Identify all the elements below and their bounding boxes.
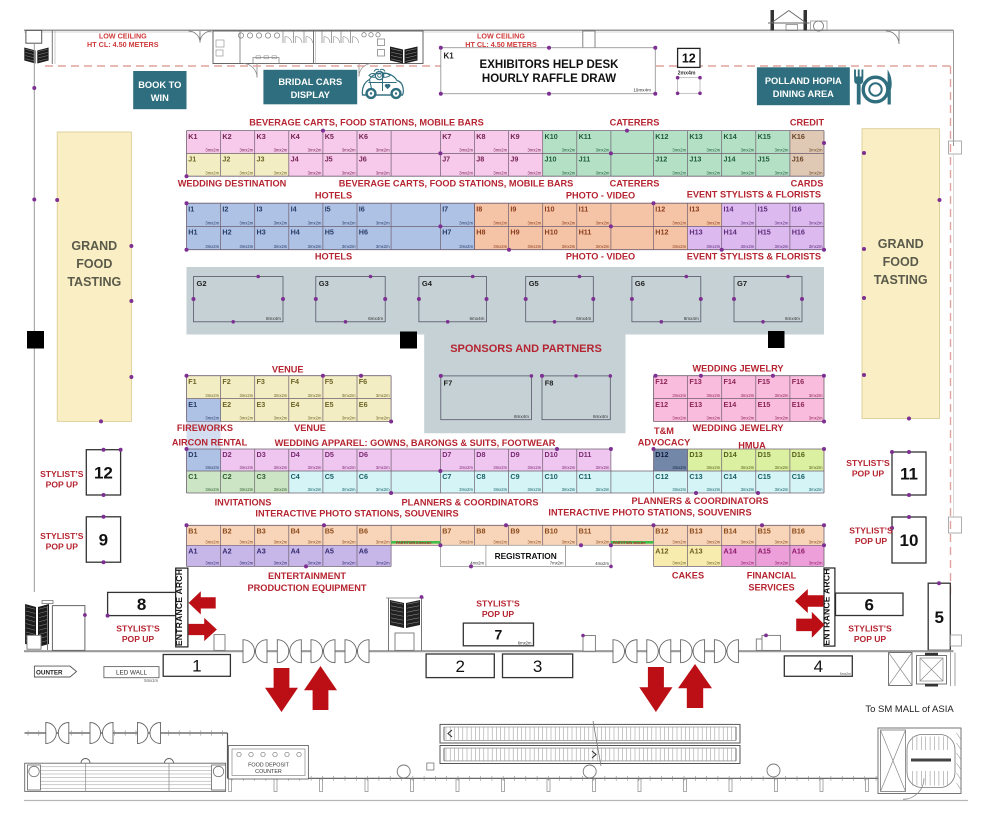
svg-text:G2: G2 (197, 279, 207, 288)
svg-text:A6: A6 (359, 547, 368, 556)
svg-text:CREDIT: CREDIT (790, 118, 825, 128)
svg-text:D12: D12 (655, 450, 668, 459)
svg-text:WEDDING JEWELRY: WEDDING JEWELRY (692, 423, 783, 433)
svg-text:K14: K14 (724, 132, 737, 141)
svg-text:I11: I11 (579, 204, 589, 213)
svg-text:I1: I1 (188, 204, 194, 213)
svg-text:POP UP: POP UP (855, 536, 888, 546)
svg-text:J16: J16 (792, 155, 804, 164)
svg-text:H7: H7 (442, 228, 451, 237)
svg-text:3mx2m: 3mx2m (308, 561, 322, 566)
svg-text:DINING AREA: DINING AREA (773, 89, 834, 99)
svg-text:HT CL: 4.50 METERS: HT CL: 4.50 METERS (87, 40, 159, 49)
svg-text:B16: B16 (792, 527, 805, 536)
svg-text:F16: F16 (792, 377, 804, 386)
svg-text:WEDDING JEWELRY: WEDDING JEWELRY (692, 364, 783, 374)
svg-text:WIN: WIN (151, 93, 169, 103)
svg-text:3mx2m: 3mx2m (342, 148, 356, 153)
svg-text:POLLAND HOPIA: POLLAND HOPIA (765, 76, 842, 86)
svg-text:SPONSORS AND PARTNERS: SPONSORS AND PARTNERS (450, 343, 602, 355)
svg-text:3mx2m: 3mx2m (596, 540, 610, 545)
svg-text:3mx2m: 3mx2m (741, 465, 755, 470)
svg-text:3mx2m: 3mx2m (562, 540, 576, 545)
svg-text:3mx2m: 3mx2m (741, 487, 755, 492)
svg-text:VENUE: VENUE (294, 423, 326, 433)
svg-text:C4: C4 (291, 472, 300, 481)
svg-text:3mx2m: 3mx2m (308, 416, 322, 421)
svg-text:POP UP: POP UP (46, 480, 79, 490)
svg-text:E12: E12 (655, 400, 668, 409)
svg-text:5mx2m: 5mx2m (840, 672, 851, 676)
svg-text:C3: C3 (257, 472, 266, 481)
svg-text:3mx2m: 3mx2m (741, 416, 755, 421)
svg-text:7: 7 (495, 627, 503, 643)
svg-text:3mx2m: 3mx2m (706, 561, 720, 566)
svg-text:3mx2m: 3mx2m (672, 244, 686, 249)
svg-text:D16: D16 (792, 450, 805, 459)
svg-text:3mx2m: 3mx2m (459, 170, 473, 175)
svg-text:3mx2m: 3mx2m (376, 416, 390, 421)
svg-text:3mx2m: 3mx2m (376, 540, 390, 545)
svg-text:J14: J14 (724, 155, 736, 164)
svg-text:3mx2m: 3mx2m (342, 393, 356, 398)
svg-text:F5: F5 (325, 377, 333, 386)
svg-text:K10: K10 (545, 132, 558, 141)
svg-text:3mx2m: 3mx2m (706, 148, 720, 153)
svg-text:3mx2m: 3mx2m (809, 170, 823, 175)
svg-text:I3: I3 (257, 204, 263, 213)
svg-text:B13: B13 (689, 527, 702, 536)
svg-text:BEVERAGE CARTS, FOOD STATIONS,: BEVERAGE CARTS, FOOD STATIONS, MOBILE BA… (339, 179, 573, 189)
svg-text:B11: B11 (579, 527, 592, 536)
svg-text:J2: J2 (222, 155, 230, 164)
svg-text:3mx2m: 3mx2m (775, 148, 789, 153)
svg-text:HMUA: HMUA (738, 441, 766, 451)
svg-text:ENTRANCE ARCH: ENTRANCE ARCH (174, 569, 184, 646)
svg-text:J6: J6 (359, 155, 367, 164)
svg-text:J3: J3 (257, 155, 265, 164)
svg-text:CARDS: CARDS (791, 179, 824, 189)
svg-text:K7: K7 (442, 132, 451, 141)
svg-text:POP UP: POP UP (854, 634, 887, 644)
svg-text:12: 12 (682, 52, 696, 66)
svg-text:3mx2m: 3mx2m (459, 487, 473, 492)
svg-text:B7: B7 (442, 527, 451, 536)
svg-text:I16: I16 (792, 204, 802, 213)
svg-text:B6: B6 (359, 527, 368, 536)
svg-text:FINANCIAL: FINANCIAL (747, 571, 797, 581)
svg-text:B1: B1 (188, 527, 197, 536)
svg-text:WEDDING DESTINATION: WEDDING DESTINATION (178, 179, 287, 189)
svg-text:A14: A14 (724, 547, 737, 556)
svg-text:3mx2m: 3mx2m (239, 170, 253, 175)
svg-text:6mx4m: 6mx4m (785, 316, 800, 321)
svg-text:3mx2m: 3mx2m (342, 170, 356, 175)
svg-text:3mx2m: 3mx2m (342, 416, 356, 421)
svg-text:3mx2m: 3mx2m (239, 465, 253, 470)
svg-text:3mx2m: 3mx2m (205, 465, 219, 470)
svg-text:STYLIST’S: STYLIST’S (40, 469, 84, 479)
svg-text:ENTERTAINMENT: ENTERTAINMENT (268, 571, 346, 581)
svg-text:H12: H12 (655, 228, 668, 237)
svg-text:3mx2m: 3mx2m (308, 487, 322, 492)
svg-text:3mx2m: 3mx2m (741, 244, 755, 249)
svg-text:I15: I15 (758, 204, 768, 213)
svg-text:CAKES: CAKES (672, 571, 704, 581)
svg-text:8mx4m: 8mx4m (514, 414, 529, 419)
svg-text:6mx2m: 6mx2m (518, 641, 532, 646)
svg-text:STYLIST’S: STYLIST’S (476, 599, 520, 609)
svg-text:STYLIST’S: STYLIST’S (40, 531, 84, 541)
svg-text:H14: H14 (724, 228, 737, 237)
svg-text:H9: H9 (510, 228, 519, 237)
svg-text:3mx2m: 3mx2m (809, 561, 823, 566)
svg-text:SERVICES: SERVICES (748, 583, 794, 593)
svg-text:E14: E14 (724, 400, 737, 409)
svg-text:D15: D15 (758, 450, 771, 459)
svg-text:3mx2m: 3mx2m (706, 393, 720, 398)
svg-text:HOURLY RAFFLE DRAW: HOURLY RAFFLE DRAW (482, 73, 616, 85)
svg-text:BRIDAL CARS: BRIDAL CARS (278, 77, 342, 87)
svg-text:H10: H10 (545, 228, 558, 237)
svg-text:3mx2m: 3mx2m (459, 148, 473, 153)
svg-text:3mx2m: 3mx2m (741, 561, 755, 566)
svg-text:K4: K4 (291, 132, 300, 141)
svg-text:H8: H8 (476, 228, 485, 237)
svg-text:D14: D14 (724, 450, 737, 459)
svg-text:K9: K9 (510, 132, 519, 141)
svg-text:3mx2m: 3mx2m (596, 221, 610, 226)
svg-text:3mx2m: 3mx2m (741, 393, 755, 398)
svg-text:3mx2m: 3mx2m (596, 244, 610, 249)
svg-text:H13: H13 (689, 228, 702, 237)
svg-text:3mx2m: 3mx2m (342, 487, 356, 492)
svg-text:3mx2m: 3mx2m (205, 487, 219, 492)
svg-text:3mx2m: 3mx2m (809, 244, 823, 249)
svg-text:3mx2m: 3mx2m (205, 148, 219, 153)
svg-text:A16: A16 (792, 547, 805, 556)
svg-text:I5: I5 (325, 204, 331, 213)
svg-text:F15: F15 (758, 377, 770, 386)
svg-text:3mx2m: 3mx2m (672, 393, 686, 398)
svg-text:CATERERS: CATERERS (610, 118, 660, 128)
svg-text:3mx2m: 3mx2m (527, 170, 541, 175)
svg-text:3mx2m: 3mx2m (527, 221, 541, 226)
svg-text:F3: F3 (257, 377, 265, 386)
svg-text:3mx2m: 3mx2m (562, 170, 576, 175)
svg-text:3mx2m: 3mx2m (342, 561, 356, 566)
svg-text:6mx4m: 6mx4m (684, 316, 699, 321)
svg-text:3mx2m: 3mx2m (527, 540, 541, 545)
svg-text:A12: A12 (655, 547, 668, 556)
svg-text:AIRCON RENTAL: AIRCON RENTAL (172, 438, 248, 448)
svg-text:3mx2m: 3mx2m (308, 465, 322, 470)
svg-text:3mx2m: 3mx2m (741, 170, 755, 175)
svg-text:D1: D1 (188, 450, 197, 459)
svg-text:B10: B10 (545, 527, 558, 536)
svg-text:3mx2m: 3mx2m (672, 416, 686, 421)
svg-text:H4: H4 (291, 228, 300, 237)
svg-text:3mx2m: 3mx2m (775, 561, 789, 566)
svg-text:DISPLAY: DISPLAY (291, 90, 331, 100)
svg-text:8: 8 (137, 595, 146, 614)
svg-text:3mx2m: 3mx2m (775, 540, 789, 545)
svg-text:3mx2m: 3mx2m (809, 393, 823, 398)
svg-text:E13: E13 (689, 400, 702, 409)
svg-text:3mx2m: 3mx2m (706, 416, 720, 421)
svg-text:3mx2m: 3mx2m (775, 221, 789, 226)
svg-text:7mx2m: 7mx2m (550, 560, 564, 565)
svg-text:6mx4m: 6mx4m (576, 316, 591, 321)
svg-text:EXHIBITORS HELP DESK: EXHIBITORS HELP DESK (480, 59, 620, 71)
svg-text:PARTITION 6.6mx1m: PARTITION 6.6mx1m (396, 541, 431, 545)
svg-text:3mx2m: 3mx2m (809, 487, 823, 492)
svg-text:3mx2m: 3mx2m (741, 540, 755, 545)
svg-text:B4: B4 (291, 527, 300, 536)
svg-text:3mx2m: 3mx2m (809, 416, 823, 421)
svg-text:3mx2m: 3mx2m (376, 148, 390, 153)
svg-text:J10: J10 (545, 155, 557, 164)
svg-text:3mx2m: 3mx2m (596, 170, 610, 175)
svg-text:STYLIST’S: STYLIST’S (116, 624, 160, 634)
svg-text:TASTING: TASTING (874, 273, 928, 287)
svg-text:C15: C15 (758, 472, 771, 481)
svg-text:3mx2m: 3mx2m (493, 465, 507, 470)
svg-text:I14: I14 (724, 204, 734, 213)
svg-text:4mx2m: 4mx2m (470, 560, 484, 565)
svg-text:H1: H1 (188, 228, 197, 237)
svg-text:D13: D13 (689, 450, 702, 459)
svg-text:3mx2m: 3mx2m (741, 148, 755, 153)
svg-text:6mx4m: 6mx4m (368, 316, 383, 321)
svg-text:K11: K11 (579, 132, 592, 141)
svg-text:3mx2m: 3mx2m (527, 465, 541, 470)
svg-text:D8: D8 (476, 450, 485, 459)
svg-text:E16: E16 (792, 400, 805, 409)
svg-text:6: 6 (864, 595, 873, 614)
svg-text:3mx2m: 3mx2m (775, 170, 789, 175)
svg-text:T&M: T&M (654, 426, 674, 436)
svg-text:3mx2m: 3mx2m (274, 148, 288, 153)
svg-text:E2: E2 (222, 400, 231, 409)
svg-text:J11: J11 (579, 155, 591, 164)
svg-text:POP UP: POP UP (482, 609, 515, 619)
svg-text:G4: G4 (422, 279, 433, 288)
svg-text:K12: K12 (655, 132, 668, 141)
svg-text:ADVOCACY: ADVOCACY (638, 438, 691, 448)
svg-text:3mx2m: 3mx2m (527, 148, 541, 153)
svg-text:A5: A5 (325, 547, 334, 556)
svg-text:3mx2m: 3mx2m (493, 221, 507, 226)
svg-text:3mx2m: 3mx2m (706, 540, 720, 545)
svg-text:PLANNERS & COORDINATORS: PLANNERS & COORDINATORS (402, 498, 539, 508)
svg-text:G3: G3 (319, 279, 329, 288)
svg-text:HOTELS: HOTELS (315, 191, 352, 201)
svg-text:3mx2m: 3mx2m (809, 148, 823, 153)
svg-text:3mx2m: 3mx2m (274, 170, 288, 175)
svg-text:3mx2m: 3mx2m (308, 221, 322, 226)
svg-text:CATERERS: CATERERS (610, 179, 660, 189)
svg-text:D4: D4 (291, 450, 300, 459)
svg-text:3mx2m: 3mx2m (274, 540, 288, 545)
svg-text:3mx2m: 3mx2m (308, 244, 322, 249)
svg-text:E5: E5 (325, 400, 334, 409)
svg-text:J5: J5 (325, 155, 333, 164)
svg-text:3mx2m: 3mx2m (672, 487, 686, 492)
svg-text:3mx2m: 3mx2m (459, 465, 473, 470)
svg-text:3mx2m: 3mx2m (493, 244, 507, 249)
svg-text:3mx2m: 3mx2m (527, 487, 541, 492)
svg-text:G5: G5 (529, 279, 539, 288)
svg-text:3mx2m: 3mx2m (562, 487, 576, 492)
svg-text:3mx2m: 3mx2m (274, 465, 288, 470)
svg-text:BEVERAGE CARTS, FOOD STATIONS,: BEVERAGE CARTS, FOOD STATIONS, MOBILE BA… (249, 118, 483, 128)
svg-text:3mx2m: 3mx2m (775, 465, 789, 470)
svg-text:3mx2m: 3mx2m (205, 416, 219, 421)
svg-text:2mx4m: 2mx4m (678, 71, 696, 77)
svg-text:3mx2m: 3mx2m (562, 244, 576, 249)
svg-text:3mx2m: 3mx2m (239, 244, 253, 249)
svg-text:3mx2m: 3mx2m (775, 393, 789, 398)
svg-text:3mx2m: 3mx2m (308, 148, 322, 153)
svg-text:3mx2m: 3mx2m (205, 170, 219, 175)
svg-text:3mx2m: 3mx2m (376, 244, 390, 249)
svg-text:6mx4m: 6mx4m (469, 316, 484, 321)
svg-text:3mx2m: 3mx2m (809, 221, 823, 226)
svg-text:3mx2m: 3mx2m (493, 170, 507, 175)
svg-text:C14: C14 (724, 472, 737, 481)
svg-text:3mx2m: 3mx2m (308, 393, 322, 398)
svg-text:K5: K5 (325, 132, 334, 141)
svg-text:STYLIST’S: STYLIST’S (849, 526, 893, 536)
svg-text:WEDDING APPAREL: GOWNS, BARONG: WEDDING APPAREL: GOWNS, BARONGS & SUITS,… (275, 438, 556, 448)
svg-text:B12: B12 (655, 527, 668, 536)
svg-text:HOTELS: HOTELS (315, 252, 352, 262)
svg-text:D7: D7 (442, 450, 451, 459)
svg-text:C2: C2 (222, 472, 231, 481)
svg-text:C5: C5 (325, 472, 334, 481)
svg-text:3mx2m: 3mx2m (274, 416, 288, 421)
svg-text:3mx2m: 3mx2m (672, 148, 686, 153)
svg-text:3mx2m: 3mx2m (205, 244, 219, 249)
svg-text:J7: J7 (442, 155, 450, 164)
svg-text:B3: B3 (257, 527, 266, 536)
svg-text:K15: K15 (758, 132, 771, 141)
svg-text:A1: A1 (188, 547, 197, 556)
svg-text:3mx2m: 3mx2m (205, 221, 219, 226)
svg-text:GRAND: GRAND (71, 239, 117, 253)
svg-text:3mx2m: 3mx2m (706, 487, 720, 492)
svg-text:3mx2m: 3mx2m (562, 221, 576, 226)
svg-text:B5: B5 (325, 527, 334, 536)
svg-text:EVENT STYLISTS & FLORISTS: EVENT STYLISTS & FLORISTS (687, 252, 821, 262)
svg-text:3mx2m: 3mx2m (706, 221, 720, 226)
svg-text:3mx2m: 3mx2m (308, 540, 322, 545)
svg-text:3mx2m: 3mx2m (376, 170, 390, 175)
svg-text:3mx2m: 3mx2m (274, 393, 288, 398)
svg-text:F14: F14 (724, 377, 736, 386)
svg-text:TASTING: TASTING (67, 275, 121, 289)
svg-text:G7: G7 (737, 279, 747, 288)
svg-text:B14: B14 (724, 527, 737, 536)
svg-text:FOOD DEPOSIT: FOOD DEPOSIT (248, 763, 289, 769)
svg-text:3mx2m: 3mx2m (562, 465, 576, 470)
svg-text:POP UP: POP UP (46, 542, 79, 552)
svg-text:G6: G6 (635, 279, 645, 288)
svg-text:F6: F6 (359, 377, 367, 386)
svg-text:D6: D6 (359, 450, 368, 459)
svg-text:C13: C13 (689, 472, 702, 481)
svg-text:LED WALL: LED WALL (116, 669, 147, 676)
svg-text:FIREWORKS: FIREWORKS (177, 423, 233, 433)
svg-text:I9: I9 (510, 204, 516, 213)
svg-text:H3: H3 (257, 228, 266, 237)
svg-text:PHOTO - VIDEO: PHOTO - VIDEO (566, 191, 635, 201)
svg-text:3mx2m: 3mx2m (459, 244, 473, 249)
svg-text:K8: K8 (476, 132, 485, 141)
svg-text:3mx2m: 3mx2m (672, 170, 686, 175)
svg-text:A13: A13 (689, 547, 702, 556)
svg-text:E6: E6 (359, 400, 368, 409)
svg-text:3mx2m: 3mx2m (239, 416, 253, 421)
svg-text:INTERACTIVE PHOTO STATIONS, SO: INTERACTIVE PHOTO STATIONS, SOUVENIRS (548, 508, 751, 518)
svg-text:A2: A2 (222, 547, 231, 556)
svg-text:C10: C10 (545, 472, 558, 481)
svg-text:OUNTER: OUNTER (36, 669, 63, 676)
svg-text:A4: A4 (291, 547, 300, 556)
svg-text:C6: C6 (359, 472, 368, 481)
svg-text:3mx2m: 3mx2m (596, 465, 610, 470)
svg-text:K13: K13 (689, 132, 702, 141)
svg-text:3mx2m: 3mx2m (775, 416, 789, 421)
svg-text:3mx2m: 3mx2m (274, 561, 288, 566)
svg-text:C11: C11 (579, 472, 592, 481)
svg-text:F12: F12 (655, 377, 667, 386)
svg-text:3mx2m: 3mx2m (809, 540, 823, 545)
svg-text:3mx2m: 3mx2m (493, 540, 507, 545)
svg-text:12: 12 (94, 464, 113, 483)
svg-text:F8: F8 (545, 379, 554, 388)
svg-text:3mx2m: 3mx2m (493, 487, 507, 492)
svg-text:POP UP: POP UP (852, 469, 885, 479)
svg-text:J8: J8 (476, 155, 484, 164)
svg-text:3mx2m: 3mx2m (596, 148, 610, 153)
svg-text:D3: D3 (257, 450, 266, 459)
svg-text:PRODUCTION EQUIPMENT: PRODUCTION EQUIPMENT (248, 583, 367, 593)
svg-text:D11: D11 (579, 450, 592, 459)
svg-text:K1: K1 (444, 52, 455, 61)
svg-text:3mx2m: 3mx2m (376, 393, 390, 398)
svg-text:H2: H2 (222, 228, 231, 237)
svg-text:H15: H15 (758, 228, 771, 237)
svg-text:E3: E3 (257, 400, 266, 409)
svg-text:C16: C16 (792, 472, 805, 481)
svg-text:FOOD: FOOD (883, 255, 919, 269)
svg-text:3mx2m: 3mx2m (527, 244, 541, 249)
svg-text:2: 2 (455, 657, 464, 676)
svg-text:A3: A3 (257, 547, 266, 556)
svg-text:3mx2m: 3mx2m (274, 221, 288, 226)
svg-text:9: 9 (99, 531, 108, 550)
svg-text:6mx4m: 6mx4m (593, 414, 608, 419)
svg-text:J4: J4 (291, 155, 299, 164)
svg-text:F4: F4 (291, 377, 299, 386)
svg-text:B2: B2 (222, 527, 231, 536)
svg-text:3mx2m: 3mx2m (672, 540, 686, 545)
svg-text:J13: J13 (689, 155, 701, 164)
svg-text:COUNTER: COUNTER (255, 769, 282, 775)
svg-text:ENTRANCE ARCH: ENTRANCE ARCH (822, 568, 832, 645)
